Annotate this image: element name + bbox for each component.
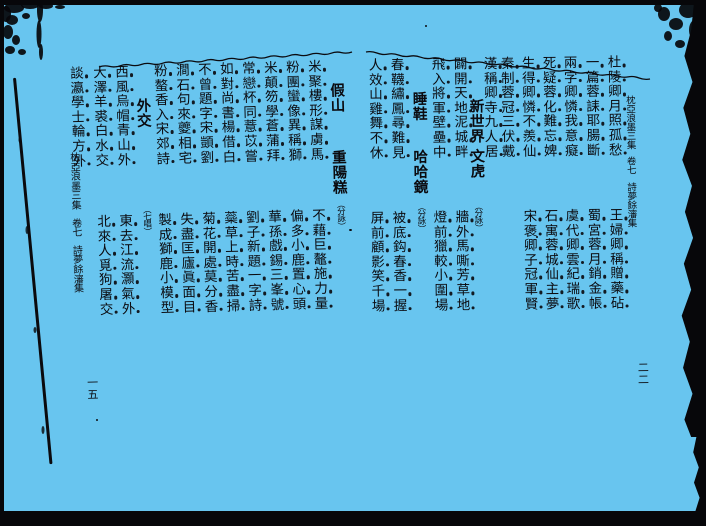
reading-circle — [284, 276, 288, 280]
reading-circle — [557, 93, 561, 97]
reading-circle — [193, 144, 197, 148]
verse-line-char: 月 — [587, 253, 603, 268]
reading-circle — [237, 158, 241, 162]
verse-line-char: 來 — [176, 107, 192, 122]
reading-circle — [499, 153, 503, 157]
verse-line-char: 石 — [175, 78, 191, 93]
verse-line-char: 交 — [94, 153, 110, 168]
reading-circle — [578, 64, 582, 68]
verse-line-char: 藉 — [311, 223, 327, 238]
verse-line-char: 地 — [455, 298, 471, 313]
verse-line-char: 外 — [116, 153, 132, 168]
verse-line-char: 一 — [584, 56, 600, 71]
reading-circle — [110, 161, 114, 165]
reading-circle — [302, 127, 306, 131]
verse-line-char: 代 — [565, 224, 581, 239]
folio-title-char: 集 — [71, 202, 83, 212]
reading-circle — [263, 306, 267, 310]
verse-line-char: 烏 — [115, 94, 131, 109]
verse-line-char: 蒼 — [264, 119, 280, 134]
verse-line-char: 馬 — [309, 147, 325, 162]
verse-line-char: 見 — [391, 146, 407, 161]
reading-circle — [261, 248, 265, 252]
verse-line-char: 稱 — [609, 252, 625, 267]
verse-line-char: 戴 — [501, 144, 517, 159]
reading-circle — [469, 124, 473, 128]
verse-line-char: 題 — [246, 254, 262, 269]
reading-circle — [195, 220, 199, 224]
verse-line-char: 王 — [608, 208, 624, 223]
verse-line-char: 多 — [289, 224, 305, 239]
reading-circle — [280, 127, 284, 131]
page-top-rule — [99, 52, 352, 67]
reading-circle — [406, 154, 410, 158]
verse-line-char: 得 — [521, 71, 537, 86]
verse-line-char: 中 — [432, 145, 448, 160]
scan-noise-blob — [55, 5, 65, 9]
reading-circle — [218, 264, 222, 268]
ink-speck — [425, 25, 427, 27]
reading-circle — [85, 74, 89, 78]
verse-line-char: 主 — [544, 282, 560, 297]
reading-circle — [515, 79, 519, 83]
verse-line-char: 輪 — [70, 125, 86, 140]
reading-circle — [538, 247, 542, 251]
verse-line-char: 闢 — [453, 57, 469, 72]
reading-circle — [174, 265, 178, 269]
verse-line-char: 我 — [563, 114, 579, 129]
topic-heading-char: 睡 — [411, 93, 429, 108]
verse-line-char: 獅 — [287, 148, 303, 163]
format-note-char: 分 — [416, 212, 428, 219]
verse-line-char: 被 — [391, 211, 407, 226]
verse-line-char: 曾 — [197, 77, 213, 92]
reading-circle — [603, 290, 607, 294]
verse-line-char: 量 — [313, 296, 329, 311]
reading-circle — [175, 294, 179, 298]
reading-circle — [498, 94, 502, 98]
topic-heading-char: 外 — [135, 100, 153, 115]
verse-line-char: 楊 — [220, 121, 236, 136]
verse-line-char: 仙 — [522, 144, 538, 159]
reading-circle — [112, 252, 116, 256]
verse-line-char: 漢 — [482, 57, 498, 72]
verse-line-char: 春 — [392, 255, 408, 270]
verse-line-char: 繡 — [390, 87, 406, 102]
reading-circle — [307, 305, 311, 309]
verse-line-char: 新 — [246, 240, 262, 255]
format-note-char: ︶ — [336, 224, 348, 232]
verse-line-char: 外 — [120, 302, 136, 317]
reading-circle — [135, 280, 139, 284]
verse-line-char: 施 — [312, 267, 328, 282]
reading-circle — [280, 113, 284, 117]
verse-line-char: 外 — [71, 154, 87, 169]
reading-circle — [324, 126, 328, 130]
reading-circle — [407, 219, 411, 223]
reading-circle — [240, 263, 244, 267]
verse-line-char: 型 — [159, 301, 175, 316]
reading-circle — [134, 222, 138, 226]
reading-circle — [406, 110, 410, 114]
reading-circle — [408, 292, 412, 296]
verse-line-char: 獵 — [433, 240, 449, 255]
reading-circle — [408, 263, 412, 267]
reading-circle — [324, 141, 328, 145]
verse-line-char: 學 — [70, 96, 86, 111]
reading-circle — [85, 104, 89, 108]
verse-line-char: 城 — [544, 253, 560, 268]
verse-line-char: 開 — [202, 241, 218, 256]
reading-circle — [175, 309, 179, 313]
folio-title-char: 三 — [70, 192, 82, 202]
verse-line-char: 陵 — [607, 70, 623, 85]
reading-circle — [173, 236, 177, 240]
format-note-char: 詠 — [336, 217, 348, 225]
folio-title-char: 枕 — [69, 154, 81, 164]
verse-line-char: 伏 — [500, 130, 516, 145]
verse-line-char: 休 — [369, 146, 385, 161]
verse-line-char: 詩 — [155, 152, 171, 167]
verse-line-char: 像 — [286, 104, 302, 119]
reading-circle — [624, 260, 628, 264]
reading-circle — [261, 233, 265, 237]
reading-circle — [281, 157, 285, 161]
folio-collection-char: 詩 — [626, 185, 638, 194]
reading-circle — [539, 276, 543, 280]
topic-heading-char: 虎 — [469, 165, 487, 180]
reading-circle — [131, 131, 135, 135]
reading-circle — [174, 279, 178, 283]
verse-line-char: 澤 — [92, 80, 108, 95]
reading-circle — [196, 279, 200, 283]
folio-collection-char: 集 — [73, 285, 85, 295]
verse-line-char: 杯 — [242, 91, 258, 106]
topic-heading-char: 交 — [135, 114, 153, 129]
verse-line-char: 壁 — [431, 116, 447, 131]
verse-line-char: 羊 — [93, 95, 109, 110]
reading-circle — [171, 145, 175, 149]
verse-line-char: 水 — [94, 139, 110, 154]
reading-circle — [285, 291, 289, 295]
reading-circle — [170, 116, 174, 120]
reading-circle — [600, 93, 604, 97]
verse-line-char: 顧 — [370, 241, 386, 256]
reading-circle — [516, 138, 520, 142]
reading-circle — [131, 117, 135, 121]
reading-circle — [259, 157, 263, 161]
reading-circle — [87, 147, 91, 151]
verse-line-char: 交 — [98, 302, 114, 317]
reading-circle — [471, 291, 475, 295]
reading-circle — [625, 304, 629, 308]
verse-line-char: 謀 — [308, 118, 324, 133]
verse-line-char: 羨 — [521, 130, 537, 145]
verse-line-char: 山 — [116, 138, 132, 153]
reading-circle — [258, 128, 262, 132]
reading-circle — [449, 262, 453, 266]
verse-line-char: 劉 — [199, 150, 215, 165]
folio-collection-char: 餘 — [626, 202, 638, 211]
reading-circle — [471, 262, 475, 266]
page-number-char: 二 — [637, 362, 650, 374]
reading-circle — [213, 85, 217, 89]
reading-circle — [135, 266, 139, 270]
verse-line-char: 山 — [368, 88, 384, 103]
reading-circle — [197, 308, 201, 312]
verse-line-char: 螯 — [153, 79, 169, 94]
verse-line-char: 飛 — [431, 58, 447, 73]
verse-line-char: 圍 — [433, 284, 449, 299]
reading-circle — [256, 70, 260, 74]
scan-border-top — [0, 0, 706, 5]
verse-line-char: 宋 — [154, 122, 170, 137]
verse-line-char: 一 — [392, 284, 408, 299]
reading-circle — [192, 130, 196, 134]
reading-circle — [134, 237, 138, 241]
reading-circle — [385, 219, 389, 223]
reading-circle — [623, 136, 627, 140]
verse-line-char: 銷 — [587, 267, 603, 282]
topic-heading-char: 界 — [468, 130, 486, 145]
reading-circle — [86, 133, 90, 137]
topic-heading-char: 鏡 — [412, 180, 430, 195]
reading-circle — [170, 130, 174, 134]
verse-line-char: 賢 — [523, 297, 539, 312]
verse-line-char: 卿 — [607, 85, 623, 100]
scan-noise-blob — [37, 20, 42, 48]
verse-line-char: 韈 — [390, 73, 406, 88]
scan-noise-blob — [12, 35, 20, 45]
verse-line-char: 顗 — [199, 136, 215, 151]
verse-line-char: 宋 — [198, 121, 214, 136]
format-note-char: ︵ — [335, 202, 347, 210]
verse-line-char: 三 — [500, 115, 516, 130]
reading-circle — [558, 123, 562, 127]
scan-noise-blob — [39, 44, 43, 60]
reading-circle — [217, 249, 221, 253]
format-note-char: ︵ — [473, 204, 485, 211]
verse-line-char: 苦 — [225, 270, 241, 285]
reading-circle — [236, 129, 240, 133]
verse-line-char: 舞 — [368, 117, 384, 132]
reading-circle — [516, 109, 520, 113]
scan-noise-blob — [654, 4, 662, 12]
ink-speck — [536, 236, 538, 238]
reading-circle — [234, 70, 238, 74]
reading-circle — [306, 276, 310, 280]
verse-line-char: 尚 — [220, 91, 236, 106]
folio-collection-char: 瀋 — [626, 211, 638, 220]
verse-line-char: 澗 — [175, 63, 191, 78]
reading-circle — [449, 292, 453, 296]
verse-line-char: 題 — [198, 92, 214, 107]
verse-line-char: 婢 — [543, 144, 559, 159]
reading-circle — [539, 290, 543, 294]
reading-circle — [239, 234, 243, 238]
verse-line-char: 字 — [247, 284, 263, 299]
reading-circle — [190, 71, 194, 75]
verse-line-char: 形 — [308, 104, 324, 119]
reading-circle — [602, 261, 606, 265]
reading-circle — [471, 306, 475, 310]
verse-line-char: 不 — [368, 131, 384, 146]
reading-circle — [449, 277, 453, 281]
verse-line-char: 盡 — [179, 227, 195, 242]
verse-line-char: 屏 — [369, 211, 385, 226]
reading-circle — [537, 108, 541, 112]
verse-line-char: 小 — [290, 239, 306, 254]
reading-circle — [498, 65, 502, 69]
verse-line-char: 婦 — [609, 223, 625, 238]
verse-line-char: 金 — [587, 282, 603, 297]
verse-line-char: 來 — [96, 229, 112, 244]
reading-circle — [257, 99, 261, 103]
verse-line-char: 制 — [500, 71, 516, 86]
reading-circle — [109, 118, 113, 122]
verse-line-char: 借 — [221, 135, 237, 150]
reading-circle — [285, 305, 289, 309]
reading-circle — [196, 264, 200, 268]
verse-line-char: 粉 — [285, 60, 301, 75]
reading-circle — [580, 217, 584, 221]
verse-line-char: 場 — [433, 298, 449, 313]
verse-line-char: 面 — [181, 285, 197, 300]
reading-circle — [112, 223, 116, 227]
verse-line-char: 薏 — [242, 120, 258, 135]
verse-line-char: 米 — [307, 60, 323, 75]
verse-line-char: 卿 — [521, 86, 537, 101]
reading-circle — [557, 64, 561, 68]
verse-line-char: 戀 — [241, 76, 257, 91]
verse-line-char: 難 — [542, 115, 558, 130]
reading-circle — [560, 276, 564, 280]
verse-line-char: 笏 — [264, 90, 280, 105]
reading-circle — [603, 275, 607, 279]
reading-circle — [383, 96, 387, 100]
verse-line-char: 小 — [433, 269, 449, 284]
verse-line-char: 砧 — [609, 296, 625, 311]
verse-line-char: 卿 — [609, 238, 625, 253]
reading-circle — [539, 305, 543, 309]
verse-line-char: 將 — [431, 87, 447, 102]
reading-circle — [625, 289, 629, 293]
verse-line-char: 風 — [114, 80, 130, 95]
reading-circle — [384, 139, 388, 143]
verse-line-char: 莫 — [203, 270, 219, 285]
verse-line-char: 裘 — [93, 110, 109, 125]
reading-circle — [560, 290, 564, 294]
reading-circle — [471, 277, 475, 281]
reading-circle — [191, 101, 195, 105]
topic-heading-char: 重 — [330, 151, 348, 166]
verse-line-char: 天 — [453, 87, 469, 102]
format-note-char: 七 — [141, 215, 153, 223]
verse-line-char: 句 — [176, 93, 192, 108]
reading-circle — [558, 108, 562, 112]
verse-line-char: 拜 — [265, 149, 281, 164]
verse-line-char: 白 — [221, 150, 237, 165]
verse-line-char: 畔 — [454, 145, 470, 160]
folio-volume-char: 七 — [626, 168, 638, 177]
verse-line-char: 去 — [118, 229, 134, 244]
reading-circle — [623, 122, 627, 126]
topic-heading-char: 陽 — [331, 166, 349, 181]
reading-circle — [537, 152, 541, 156]
format-note-char: 唱 — [142, 222, 154, 230]
reading-circle — [214, 144, 218, 148]
verse-line-char: 牆 — [454, 210, 470, 225]
verse-line-char: 子 — [245, 225, 261, 240]
verse-line-char: 稱 — [483, 72, 499, 87]
verse-line-char: 燈 — [432, 211, 448, 226]
verse-line-char: 嘶 — [455, 254, 471, 269]
verse-line-char: 相 — [177, 136, 193, 151]
reading-circle — [469, 109, 473, 113]
format-note-char: 詠 — [473, 219, 485, 226]
reading-circle — [262, 277, 266, 281]
verse-line-char: 詩 — [247, 298, 263, 313]
reading-circle — [87, 162, 91, 166]
book-scan: 杜陵卿月照孤愁王婦卿稱贈藥砧一篇蓉誄耶腸斷蜀宮蓉月銷金帳兩字卿憐我意癡虞代卿雲紀… — [0, 0, 706, 526]
reading-circle — [134, 251, 138, 255]
verse-line-char: 前 — [433, 225, 449, 240]
folio-title-char: 枕 — [625, 97, 637, 106]
verse-line-char: 地 — [453, 101, 469, 116]
folio-title-char: 墨 — [625, 124, 637, 133]
verse-line-char: 覓 — [97, 259, 113, 274]
scan-noise-blob — [3, 25, 13, 39]
reading-circle — [446, 66, 450, 70]
folio-volume-char: 卷 — [626, 159, 638, 168]
reading-circle — [279, 84, 283, 88]
reading-circle — [580, 261, 584, 265]
reading-circle — [447, 124, 451, 128]
verse-line-char: 石 — [543, 209, 559, 224]
reading-circle — [580, 232, 584, 236]
reading-circle — [559, 246, 563, 250]
reading-circle — [538, 261, 542, 265]
reading-circle — [109, 132, 113, 136]
folio-title-char: 浪 — [625, 115, 637, 124]
verse-line-char: 香 — [203, 299, 219, 314]
reading-circle — [307, 290, 311, 294]
reading-circle — [212, 71, 216, 75]
verse-line-char: 目 — [181, 300, 197, 315]
verse-line-char: 苡 — [243, 135, 259, 150]
reading-circle — [516, 152, 520, 156]
scan-border-right — [702, 0, 706, 526]
verse-line-char: 粉 — [153, 64, 169, 79]
reading-circle — [408, 277, 412, 281]
topic-heading-char: 新 — [468, 100, 486, 115]
verse-line-char: 蓉 — [585, 85, 601, 100]
reading-circle — [130, 88, 134, 92]
reading-circle — [173, 221, 177, 225]
reading-circle — [193, 159, 197, 163]
verse-line-char: 泥 — [453, 116, 469, 131]
verse-line-char: 心 — [291, 282, 307, 297]
reading-circle — [499, 109, 503, 113]
verse-line-char: 草 — [455, 283, 471, 298]
reading-circle — [323, 82, 327, 86]
verse-line-char: 冠 — [523, 268, 539, 283]
verse-line-char: 戲 — [268, 239, 284, 254]
verse-line-char: 聚 — [307, 74, 323, 89]
scan-noise-blob — [658, 7, 670, 21]
reading-circle — [329, 290, 333, 294]
right-page: 杜陵卿月照孤愁王婦卿稱贈藥砧一篇蓉誄耶腸斷蜀宮蓉月銷金帳兩字卿憐我意癡虞代卿雲紀… — [0, 0, 706, 526]
